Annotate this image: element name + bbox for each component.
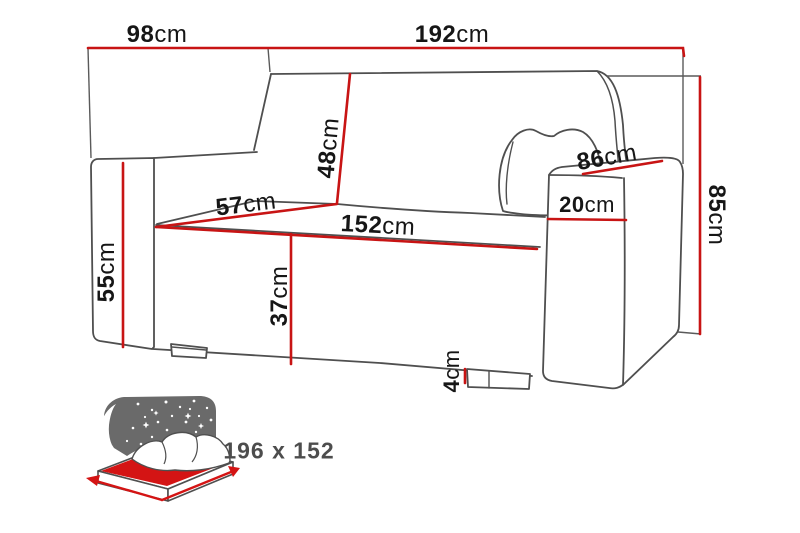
- dim-unit: cm: [93, 242, 120, 275]
- dim-value: 98: [127, 21, 155, 48]
- arrowhead-left: [86, 475, 100, 486]
- dim-value: 37: [266, 299, 293, 327]
- dim-label-backrest-height: 48cm: [314, 117, 343, 180]
- dim-value: 55: [93, 275, 120, 303]
- dim-value: 4: [439, 380, 464, 393]
- dim-value: 57: [214, 191, 245, 221]
- dim-unit: cm: [456, 21, 489, 48]
- dim-label-seat-width: 152cm: [340, 212, 416, 240]
- dim-unit: cm: [266, 266, 293, 299]
- dim-unit: cm: [154, 21, 187, 48]
- sleeping-area-size: 196 x 152: [223, 440, 334, 463]
- ext-left: [88, 48, 91, 158]
- dim-label-armrest-width: 20cm: [559, 194, 615, 216]
- dim-label-armrest-height: 55cm: [95, 242, 119, 303]
- dim-unit: cm: [703, 212, 730, 245]
- sofa-dimension-diagram: 98cm 192cm 85cm 48cm 86cm 57cm 152cm 20c…: [0, 0, 800, 533]
- dim-value: 85: [703, 185, 730, 213]
- dim-line-armrest-width: [548, 219, 626, 220]
- sofa-line-drawing: [0, 0, 800, 533]
- front-left-leg: [171, 344, 207, 358]
- dim-value: 152: [340, 210, 383, 239]
- dim-value: 192: [415, 21, 457, 48]
- dim-label-seat-height: 37cm: [268, 266, 292, 327]
- dim-unit: cm: [382, 212, 416, 241]
- dim-value: 20: [559, 192, 584, 217]
- ext-height-bottom: [678, 332, 701, 334]
- dim-line-top-width: [88, 48, 684, 56]
- dim-label-overall-height: 85cm: [704, 185, 728, 246]
- dim-value: 48: [312, 149, 341, 179]
- front-right-leg: [467, 369, 530, 389]
- dim-unit: cm: [242, 187, 278, 218]
- sofa-bed-icon: [86, 396, 240, 501]
- dim-unit: cm: [602, 139, 639, 171]
- dim-label-overall-depth: 98cm: [127, 23, 188, 47]
- dim-label-overall-width: 192cm: [415, 23, 490, 47]
- dim-unit: cm: [315, 117, 345, 152]
- ext-mid: [268, 48, 270, 72]
- dim-label-leg-height: 4cm: [441, 349, 463, 392]
- dim-unit: cm: [585, 192, 615, 217]
- dim-unit: cm: [439, 349, 464, 379]
- left-armrest-top-edge: [154, 152, 257, 158]
